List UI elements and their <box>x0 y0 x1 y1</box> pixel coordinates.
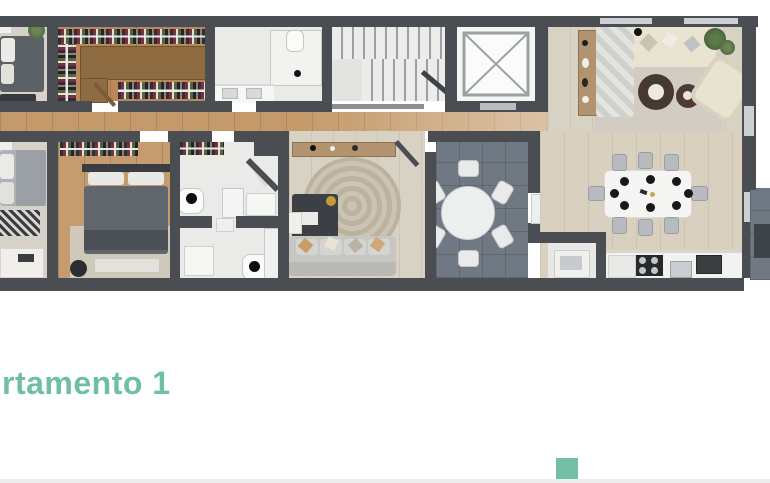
sofa-chaise <box>596 27 634 117</box>
bottom-divider <box>0 479 770 483</box>
terrace-table <box>441 186 495 240</box>
window <box>744 106 754 136</box>
decor-bowl <box>326 196 336 206</box>
floor-plan-image <box>0 0 770 310</box>
floor-lamp <box>634 28 642 36</box>
elevator-shaft <box>457 27 535 101</box>
wall-right <box>742 16 756 190</box>
wall-segment <box>254 140 278 156</box>
wall-segment <box>47 16 58 112</box>
place-setting <box>684 189 693 198</box>
kitchen-sink <box>670 261 692 278</box>
place-setting <box>610 189 619 198</box>
kitchen-appliance <box>696 255 722 274</box>
bed3-pillow <box>0 154 14 179</box>
place-setting <box>672 201 681 210</box>
wall-segment <box>236 216 278 228</box>
bed3-pillow <box>0 182 14 204</box>
console-decor <box>330 146 335 151</box>
washer-door <box>560 256 582 270</box>
plant <box>720 40 735 55</box>
toilet-seat <box>249 261 260 272</box>
wall-segment <box>205 16 215 112</box>
toilet-seat <box>186 193 197 204</box>
place-setting <box>620 177 629 186</box>
elevator-x-symbol <box>457 27 535 101</box>
wall-segment <box>170 131 180 278</box>
linen-rack <box>180 142 224 155</box>
kitchen-cabinet <box>608 255 636 278</box>
wall-segment <box>445 16 457 112</box>
patterned-rug <box>0 210 40 236</box>
dining-chair <box>691 186 708 201</box>
dining-chair <box>612 217 627 234</box>
wall-segment <box>535 16 548 112</box>
window <box>744 192 750 222</box>
place-setting <box>620 201 629 210</box>
closet-rack <box>118 82 205 99</box>
console-decor <box>582 96 589 103</box>
console-decor <box>582 58 589 68</box>
place-setting <box>672 177 681 186</box>
closet-rack <box>58 29 205 44</box>
dining-chair <box>664 217 679 234</box>
balcony-furniture <box>754 224 770 258</box>
wall-laundry <box>596 232 606 278</box>
terrace-chair <box>458 160 479 177</box>
bed3-duvet <box>16 150 46 206</box>
closet-island <box>80 46 207 80</box>
ottoman-tray <box>300 212 318 225</box>
wall-bottom <box>0 278 744 291</box>
stove-burner <box>651 257 658 264</box>
dining-chair <box>638 152 653 169</box>
wall-segment <box>0 101 92 112</box>
stair-flight <box>332 27 445 59</box>
wall-segment <box>256 101 322 112</box>
vanity <box>184 246 214 276</box>
console-decor <box>582 78 588 87</box>
table-centerpiece <box>650 192 655 197</box>
dining-chair <box>664 154 679 171</box>
corridor-floor <box>0 112 548 131</box>
console-decor <box>310 145 316 151</box>
sink <box>222 88 238 99</box>
wall-segment <box>178 216 212 228</box>
bed2-headboard <box>82 164 170 172</box>
window <box>684 18 738 24</box>
apartment-title: rtamento 1 <box>2 365 171 402</box>
door-leaf <box>216 218 234 232</box>
dresser <box>0 248 44 278</box>
console-decor <box>582 40 588 46</box>
dining-chair <box>588 186 605 201</box>
closet-rack <box>58 44 76 101</box>
closet-rack <box>60 142 138 156</box>
stair-guard-rail <box>332 104 424 109</box>
bed2-pillow <box>128 172 164 185</box>
stair-landing <box>332 59 362 101</box>
terrace-door <box>531 194 541 224</box>
teal-accent-square <box>556 458 578 480</box>
wall-segment <box>47 131 58 278</box>
bed2-throw <box>84 230 168 250</box>
coffee-table-tray <box>648 84 664 100</box>
place-setting <box>646 175 655 184</box>
vanity <box>246 193 276 216</box>
sink <box>246 88 262 99</box>
wall-terrace-top <box>428 131 540 142</box>
dining-chair <box>638 219 653 236</box>
shower-door <box>222 188 244 218</box>
console-decor <box>352 145 358 151</box>
wall-segment <box>278 131 289 278</box>
shower-drain <box>294 70 301 77</box>
bed2-pillow <box>88 172 124 185</box>
nightstand <box>0 142 12 150</box>
place-setting <box>646 203 655 212</box>
side-stool <box>70 260 87 277</box>
dresser-tray <box>18 254 34 262</box>
wall-segment <box>322 16 332 112</box>
wall-segment <box>528 131 540 193</box>
window <box>600 18 652 24</box>
wall-segment <box>425 152 436 278</box>
dining-chair <box>612 154 627 171</box>
wall-segment <box>118 101 232 112</box>
wall-segment <box>0 131 140 142</box>
media-console <box>292 142 396 157</box>
stove-burner <box>651 267 658 274</box>
stove-burner <box>639 267 646 274</box>
stove-burner <box>639 257 646 264</box>
family-sofa-back <box>288 262 396 276</box>
bed2-bench <box>94 258 160 273</box>
bed1-pillow <box>1 64 14 84</box>
terrace-chair <box>458 250 479 267</box>
bed1-pillow <box>1 38 15 62</box>
elevator-door <box>480 103 516 110</box>
toilet <box>286 30 304 52</box>
wall-laundry <box>538 232 598 243</box>
